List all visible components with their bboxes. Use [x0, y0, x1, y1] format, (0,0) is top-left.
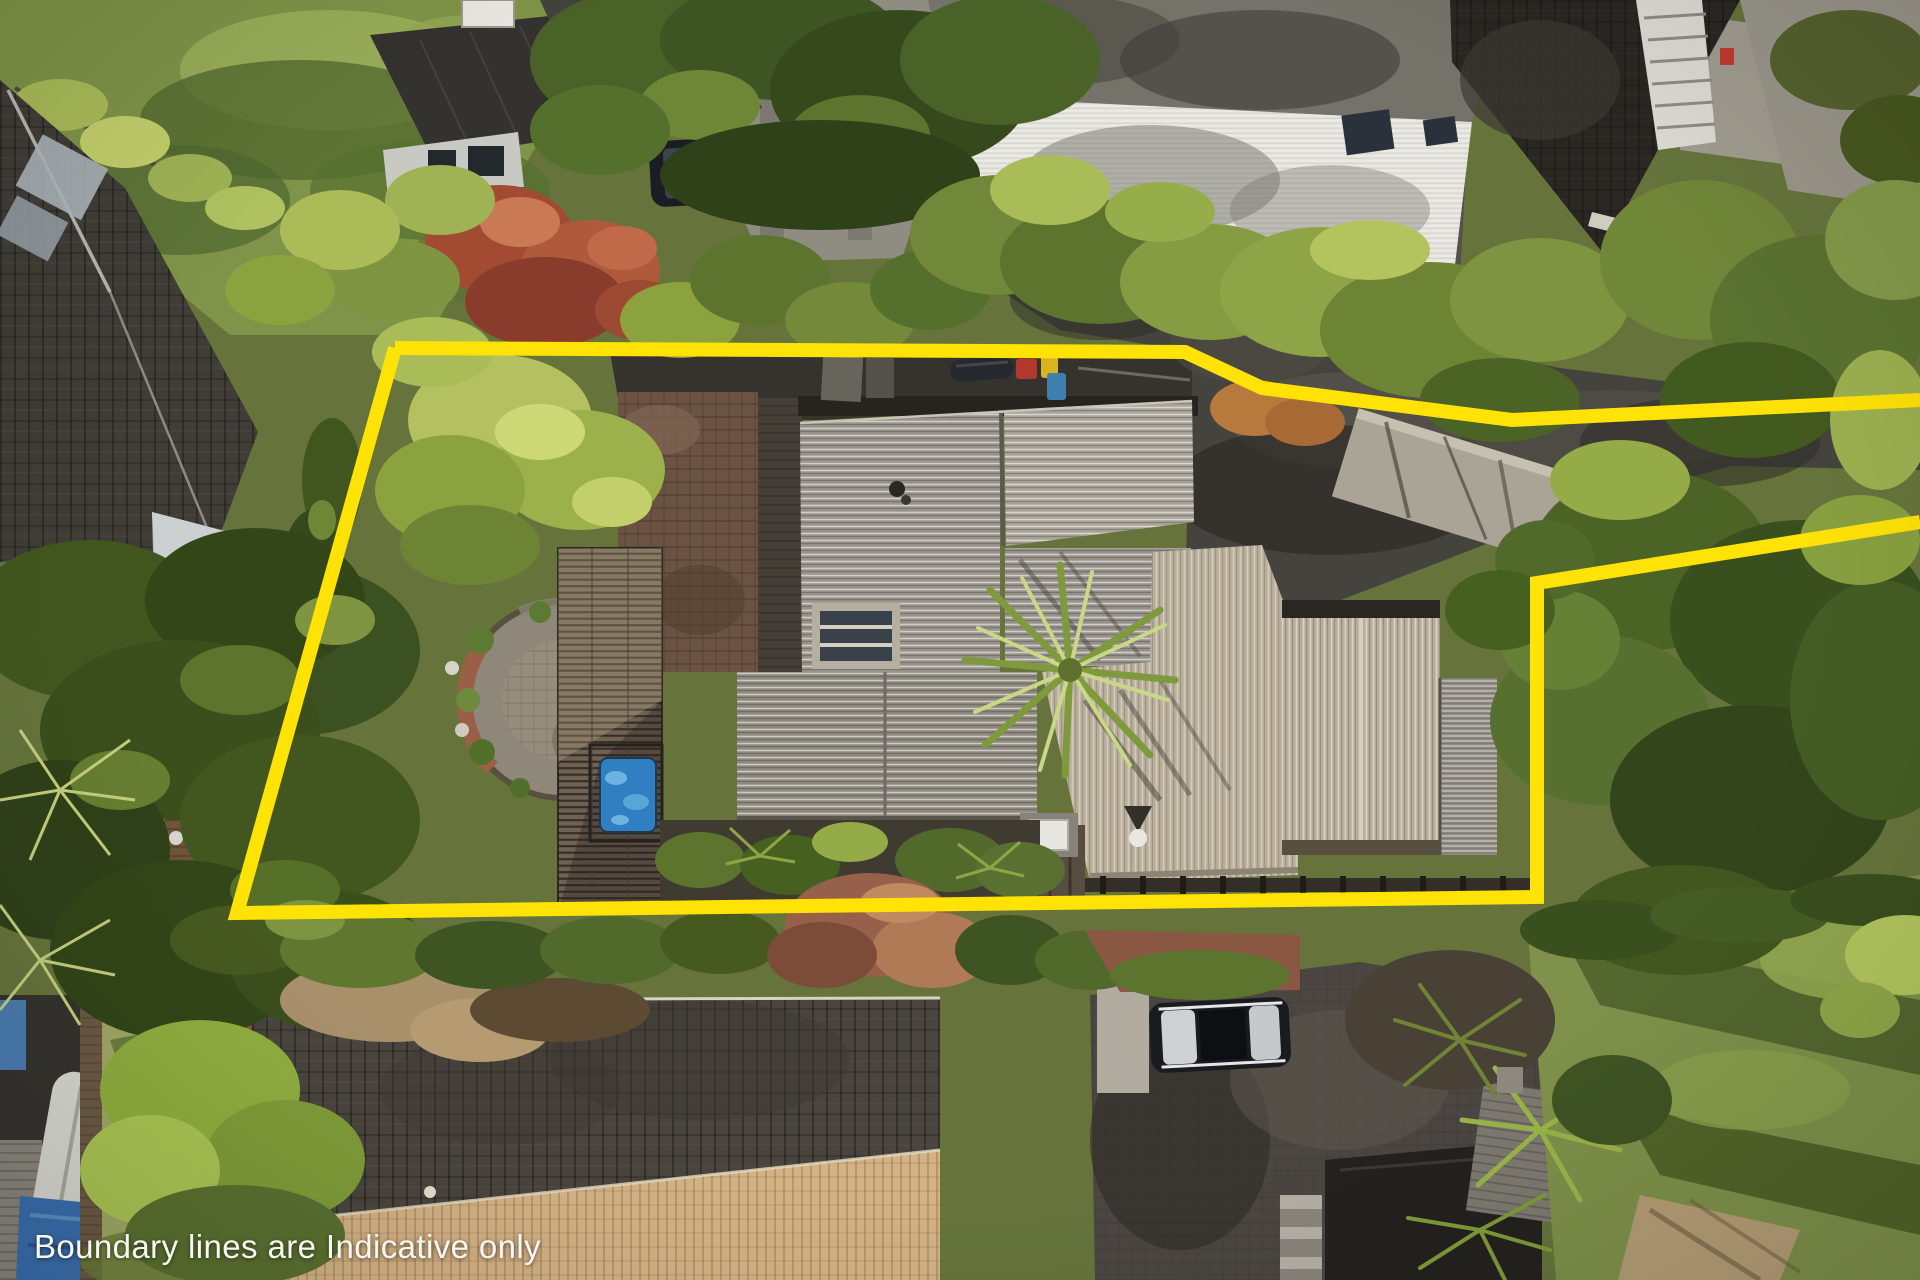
aerial-photo: Boundary lines are Indicative only	[0, 0, 1920, 1280]
parked-car	[1148, 996, 1291, 1073]
pergola-deck	[558, 548, 662, 912]
aerial-photo-canvas	[0, 0, 1920, 1280]
boundary-disclaimer-text: Boundary lines are Indicative only	[34, 1228, 541, 1266]
